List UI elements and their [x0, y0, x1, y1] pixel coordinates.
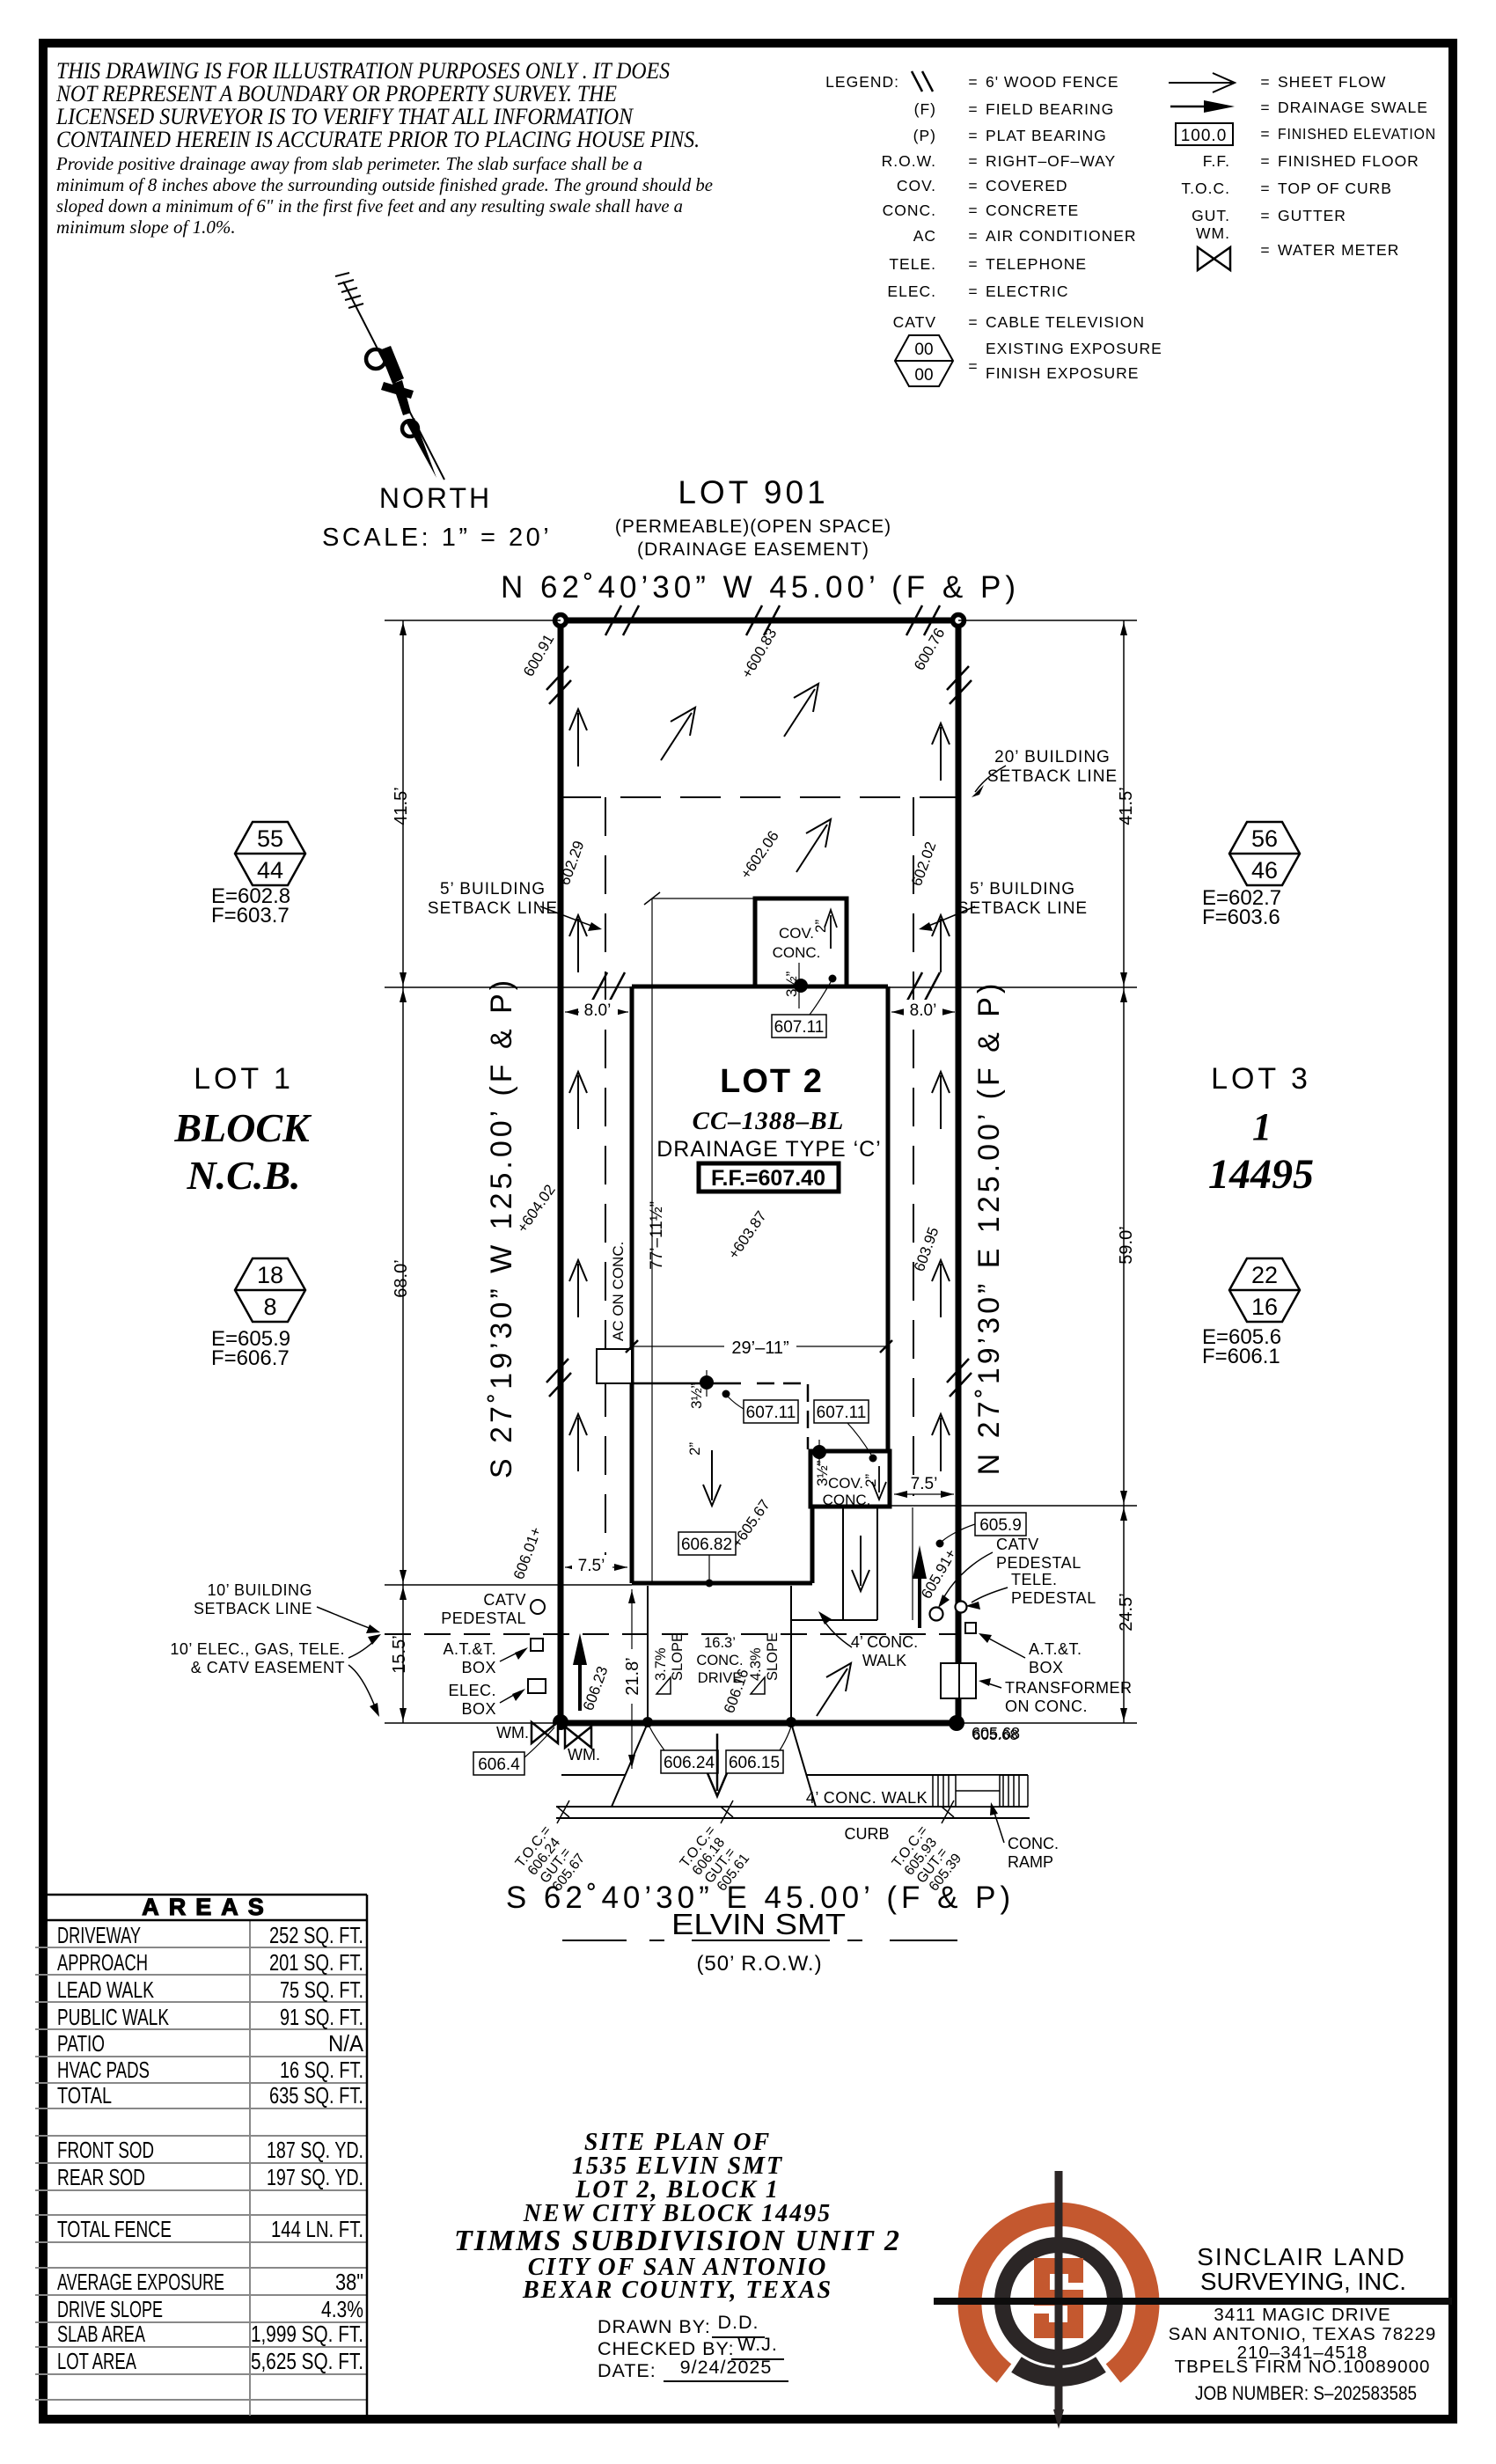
svg-text:PEDESTAL: PEDESTAL	[1011, 1589, 1096, 1607]
svg-text:607.11: 607.11	[774, 1018, 825, 1037]
svg-text:7.5’: 7.5’	[578, 1557, 605, 1575]
svg-text:F=603.6: F=603.6	[1202, 906, 1280, 929]
svg-text:18: 18	[257, 1262, 283, 1288]
svg-text:PEDESTAL: PEDESTAL	[996, 1554, 1082, 1572]
svg-text:AC ON CONC.: AC ON CONC.	[610, 1242, 627, 1341]
svg-text:LOT 901: LOT 901	[678, 474, 828, 510]
svg-text:TBPELS FIRM NO.10089000: TBPELS FIRM NO.10089000	[1175, 2357, 1431, 2377]
svg-text:3½”: 3½”	[814, 1460, 831, 1486]
svg-text:5’ BUILDING: 5’ BUILDING	[970, 880, 1075, 898]
svg-text:N 27˚19’30” E 125.00’ (F & P): N 27˚19’30” E 125.00’ (F & P)	[972, 980, 1006, 1476]
svg-text:144 LN. FT.: 144 LN. FT.	[271, 2216, 363, 2242]
svg-text:197 SQ. YD.: 197 SQ. YD.	[267, 2164, 363, 2190]
svg-text:BEXAR COUNTY, TEXAS: BEXAR COUNTY, TEXAS	[522, 2277, 832, 2304]
svg-text:91 SQ. FT.: 91 SQ. FT.	[280, 2004, 363, 2030]
svg-text:BOX: BOX	[461, 1700, 496, 1718]
svg-text:=: =	[968, 127, 978, 144]
svg-text:AREAS: AREAS	[142, 1894, 274, 1920]
svg-text:TOTAL FENCE: TOTAL FENCE	[57, 2216, 172, 2242]
svg-text:EXISTING EXPOSURE: EXISTING EXPOSURE	[986, 340, 1162, 357]
svg-text:606.24: 606.24	[664, 1754, 715, 1772]
svg-text:SLAB AREA: SLAB AREA	[57, 2321, 145, 2347]
svg-text:56: 56	[1251, 825, 1278, 852]
svg-text:DRIVEWAY: DRIVEWAY	[57, 1922, 141, 1948]
svg-text:CONC.: CONC.	[883, 202, 936, 219]
svg-text:N/A: N/A	[328, 2030, 364, 2057]
svg-text:COV.: COV.	[897, 177, 936, 194]
svg-text:DRIVE: DRIVE	[698, 1670, 742, 1686]
svg-text:RIGHT–OF–WAY: RIGHT–OF–WAY	[986, 152, 1116, 170]
svg-text:GUTTER: GUTTER	[1278, 207, 1346, 224]
svg-text:CONC.: CONC.	[1008, 1835, 1059, 1852]
svg-text:CONC.: CONC.	[773, 944, 821, 961]
svg-text:2”: 2”	[812, 920, 829, 933]
svg-text:=: =	[968, 152, 978, 170]
svg-text:SHEET FLOW: SHEET FLOW	[1278, 73, 1386, 91]
svg-text:R.O.W.: R.O.W.	[882, 152, 936, 170]
svg-text:CABLE TELEVISION: CABLE TELEVISION	[986, 313, 1145, 331]
svg-text:COV.: COV.	[779, 925, 814, 942]
svg-text:WM.: WM.	[1196, 224, 1230, 242]
svg-text:16 SQ. FT.: 16 SQ. FT.	[280, 2057, 363, 2083]
svg-text:607.11: 607.11	[746, 1404, 796, 1422]
svg-text:BOX: BOX	[1029, 1659, 1064, 1676]
svg-text:FINISHED ELEVATION: FINISHED ELEVATION	[1278, 125, 1436, 143]
svg-text:29’–11”: 29’–11”	[731, 1338, 788, 1358]
svg-text:AC: AC	[913, 227, 936, 245]
svg-text:=: =	[968, 282, 978, 300]
svg-text:21.8’: 21.8’	[623, 1657, 642, 1695]
svg-text:SLOPE: SLOPE	[765, 1632, 781, 1681]
svg-text:APPROACH: APPROACH	[57, 1949, 148, 1976]
svg-text:3½”: 3½”	[783, 971, 800, 997]
svg-text:=: =	[1260, 73, 1270, 91]
svg-text:F=606.1: F=606.1	[1202, 1345, 1280, 1368]
svg-text:LOT AREA: LOT AREA	[57, 2348, 136, 2374]
svg-text:CATV: CATV	[996, 1536, 1039, 1553]
svg-text:=: =	[1260, 125, 1270, 143]
svg-text:TELEPHONE: TELEPHONE	[986, 255, 1087, 273]
svg-text:RAMP: RAMP	[1008, 1853, 1053, 1871]
svg-text:FIELD BEARING: FIELD BEARING	[986, 100, 1114, 118]
svg-text:TRANSFORMER: TRANSFORMER	[1005, 1679, 1133, 1697]
svg-text:+604.02: +604.02	[514, 1182, 559, 1236]
svg-text:=: =	[968, 357, 978, 375]
svg-text:5’ BUILDING: 5’ BUILDING	[440, 880, 546, 898]
svg-text:(50’ R.O.W.): (50’ R.O.W.)	[696, 1952, 822, 1976]
svg-text:F.F.: F.F.	[1203, 152, 1230, 170]
svg-text:PATIO: PATIO	[57, 2030, 105, 2057]
svg-text:=: =	[1260, 152, 1270, 170]
svg-text:PLAT BEARING: PLAT BEARING	[986, 127, 1107, 144]
svg-text:77’–11½”: 77’–11½”	[648, 1201, 666, 1270]
svg-text:68.0’: 68.0’	[392, 1259, 411, 1297]
svg-text:CC–1388–BL: CC–1388–BL	[693, 1107, 845, 1135]
svg-text:38": 38"	[335, 2269, 363, 2295]
svg-text:4’ CONC.: 4’ CONC.	[851, 1633, 918, 1651]
svg-text:1: 1	[1252, 1105, 1272, 1148]
svg-text:+602.06: +602.06	[737, 828, 782, 883]
svg-text:CONCRETE: CONCRETE	[986, 202, 1079, 219]
svg-text:Provide positive drainage away: Provide positive drainage away from slab…	[55, 153, 642, 174]
svg-text:20’ BUILDING: 20’ BUILDING	[994, 748, 1111, 766]
svg-text:=: =	[1260, 207, 1270, 224]
svg-text:LEAD WALK: LEAD WALK	[57, 1976, 154, 2003]
svg-text:TOTAL: TOTAL	[57, 2082, 112, 2108]
svg-text:=: =	[1260, 241, 1270, 259]
svg-text:15.5’: 15.5’	[390, 1635, 409, 1673]
svg-text:5,625 SQ. FT.: 5,625 SQ. FT.	[251, 2348, 363, 2374]
svg-text:ELVIN SMT: ELVIN SMT	[671, 1908, 846, 1940]
svg-text:BLOCK: BLOCK	[173, 1105, 312, 1150]
svg-text:SINCLAIR LAND: SINCLAIR LAND	[1197, 2243, 1406, 2270]
svg-text:10’ BUILDING: 10’ BUILDING	[208, 1581, 312, 1599]
svg-text:=: =	[1260, 180, 1270, 197]
svg-text:F.F.=607.40: F.F.=607.40	[711, 1166, 825, 1191]
svg-text:55: 55	[257, 825, 283, 852]
svg-text:sloped down a minimum of 6" in: sloped down a minimum of 6" in the first…	[56, 195, 683, 216]
svg-text:NORTH: NORTH	[379, 482, 492, 514]
svg-text:TELE.: TELE.	[1011, 1571, 1058, 1588]
svg-text:JOB NUMBER: S–202583585: JOB NUMBER: S–202583585	[1195, 2382, 1417, 2404]
svg-text:TIMMS SUBDIVISION UNIT 2: TIMMS SUBDIVISION UNIT 2	[454, 2225, 901, 2257]
svg-text:44: 44	[257, 857, 283, 884]
svg-text:FRONT SOD: FRONT SOD	[57, 2137, 154, 2163]
svg-text:201 SQ. FT.: 201 SQ. FT.	[269, 1949, 363, 1976]
svg-text:D.D.: D.D.	[718, 2312, 759, 2333]
svg-text:606.82: 606.82	[681, 1536, 732, 1554]
svg-text:DRAWN BY:: DRAWN BY:	[598, 2316, 711, 2337]
svg-text:N.C.B.: N.C.B.	[186, 1153, 300, 1198]
svg-text:606.01+: 606.01+	[510, 1525, 545, 1582]
svg-text:FINISH EXPOSURE: FINISH EXPOSURE	[986, 364, 1139, 382]
svg-text:SAN ANTONIO, TEXAS 78229: SAN ANTONIO, TEXAS 78229	[1169, 2324, 1437, 2344]
svg-text:3½”: 3½”	[688, 1382, 705, 1409]
svg-text:ELEC.: ELEC.	[887, 282, 936, 300]
svg-text:DATE:: DATE:	[598, 2360, 656, 2381]
svg-text:NEW CITY BLOCK 14495: NEW CITY BLOCK 14495	[523, 2200, 832, 2227]
svg-text:CONC.: CONC.	[823, 1492, 871, 1508]
svg-text:75 SQ. FT.: 75 SQ. FT.	[280, 1976, 363, 2003]
svg-text:00: 00	[914, 366, 933, 385]
svg-text:8.0’: 8.0’	[584, 1001, 612, 1020]
svg-text:46: 46	[1251, 857, 1278, 884]
svg-text:16: 16	[1251, 1294, 1278, 1320]
svg-text:607.11: 607.11	[817, 1404, 867, 1422]
svg-text:635 SQ. FT.: 635 SQ. FT.	[269, 2082, 363, 2108]
svg-text:DRAINAGE SWALE: DRAINAGE SWALE	[1278, 99, 1428, 116]
svg-text:00: 00	[914, 341, 933, 359]
svg-text:GUT.: GUT.	[1192, 207, 1230, 224]
svg-text:CONTAINED HEREIN IS ACCURATE P: CONTAINED HEREIN IS ACCURATE PRIOR TO PL…	[56, 127, 700, 152]
svg-text:WM.: WM.	[568, 1746, 600, 1764]
svg-text:PUBLIC WALK: PUBLIC WALK	[57, 2004, 169, 2030]
svg-text:SETBACK LINE: SETBACK LINE	[428, 899, 558, 918]
svg-text:10’ ELEC., GAS, TELE.: 10’ ELEC., GAS, TELE.	[170, 1640, 345, 1658]
svg-text:252 SQ. FT.: 252 SQ. FT.	[269, 1922, 363, 1948]
svg-text:SETBACK LINE: SETBACK LINE	[957, 899, 1088, 918]
svg-text:=: =	[968, 73, 978, 91]
svg-text:=: =	[968, 100, 978, 118]
svg-text:7.5’: 7.5’	[911, 1475, 938, 1493]
svg-text:N 62˚40’30” W 45.00’ (F & P): N 62˚40’30” W 45.00’ (F & P)	[501, 570, 1020, 605]
svg-text:=: =	[968, 227, 978, 245]
svg-text:CONC.: CONC.	[696, 1653, 743, 1668]
svg-text:24.5’: 24.5’	[1117, 1593, 1136, 1631]
svg-text:F=603.7: F=603.7	[211, 904, 290, 928]
svg-text:2”: 2”	[862, 1474, 879, 1487]
svg-text:TOP OF CURB: TOP OF CURB	[1278, 180, 1392, 197]
svg-text:606.4: 606.4	[478, 1756, 520, 1774]
svg-text:WM.: WM.	[496, 1724, 529, 1742]
svg-text:600.76: 600.76	[911, 625, 948, 673]
svg-text:COVERED: COVERED	[986, 177, 1068, 194]
svg-text:+600.83: +600.83	[738, 626, 780, 681]
svg-text:AIR CONDITIONER: AIR CONDITIONER	[986, 227, 1137, 245]
svg-text:S 27˚19’30” W 125.00’ (F & P): S 27˚19’30” W 125.00’ (F & P)	[485, 977, 518, 1478]
svg-text:16.3’: 16.3’	[704, 1635, 736, 1651]
svg-text:14495: 14495	[1208, 1151, 1314, 1198]
svg-text:DRAINAGE TYPE ‘C’: DRAINAGE TYPE ‘C’	[656, 1137, 881, 1162]
svg-text:8.0’: 8.0’	[910, 1001, 937, 1020]
svg-text:59.0’: 59.0’	[1117, 1226, 1136, 1264]
svg-text:SETBACK LINE: SETBACK LINE	[987, 767, 1118, 786]
svg-text:NOT REPRESENT A BOUNDARY OR PR: NOT REPRESENT A BOUNDARY OR PROPERTY SUR…	[55, 81, 617, 106]
svg-text:A.T.&T.: A.T.&T.	[443, 1640, 496, 1658]
svg-text:CURB: CURB	[844, 1825, 889, 1843]
svg-text:4.3%: 4.3%	[748, 1647, 764, 1681]
svg-text:BOX: BOX	[461, 1659, 496, 1676]
svg-text:8: 8	[263, 1294, 276, 1320]
svg-text:PEDESTAL: PEDESTAL	[441, 1610, 526, 1627]
svg-text:3.7%: 3.7%	[653, 1647, 669, 1681]
svg-text:605.68: 605.68	[972, 1725, 1020, 1742]
svg-text:=: =	[968, 313, 978, 331]
svg-text:T.O.C.: T.O.C.	[1181, 180, 1230, 197]
svg-text:AVERAGE EXPOSURE: AVERAGE EXPOSURE	[57, 2269, 224, 2295]
svg-text:LICENSED SURVEYOR IS TO VERIFY: LICENSED SURVEYOR IS TO VERIFY THAT ALL …	[55, 104, 634, 129]
svg-text:41.5’: 41.5’	[392, 787, 411, 825]
svg-text:WALK: WALK	[862, 1652, 906, 1669]
svg-text:SETBACK LINE: SETBACK LINE	[194, 1600, 312, 1617]
svg-text:TELE.: TELE.	[889, 255, 936, 273]
svg-text:SLOPE: SLOPE	[670, 1632, 686, 1681]
svg-text:minimum of 8 inches above the: minimum of 8 inches above the surroundin…	[56, 174, 713, 195]
svg-text:LOT 1: LOT 1	[194, 1062, 294, 1096]
svg-text:1,999 SQ. FT.: 1,999 SQ. FT.	[251, 2321, 363, 2347]
svg-text:CATV: CATV	[893, 313, 936, 331]
svg-text:=: =	[968, 202, 978, 219]
svg-text:605.9: 605.9	[979, 1516, 1022, 1535]
svg-text:+603.87: +603.87	[725, 1208, 770, 1263]
svg-text:LEGEND:: LEGEND:	[825, 73, 899, 91]
svg-text:6' WOOD FENCE: 6' WOOD FENCE	[986, 73, 1119, 91]
svg-text:& CATV EASEMENT: & CATV EASEMENT	[191, 1659, 345, 1676]
svg-text:ELECTRIC: ELECTRIC	[986, 282, 1069, 300]
svg-text:FINISHED FLOOR: FINISHED FLOOR	[1278, 152, 1419, 170]
svg-text:LOT 3: LOT 3	[1211, 1062, 1311, 1096]
svg-text:SURVEYING, INC.: SURVEYING, INC.	[1200, 2268, 1406, 2295]
svg-text:minimum slope of 1.0%.: minimum slope of 1.0%.	[56, 216, 236, 238]
svg-text:4.3%: 4.3%	[321, 2296, 363, 2322]
svg-text:100.0: 100.0	[1181, 127, 1228, 145]
svg-text:22: 22	[1251, 1262, 1278, 1288]
svg-text:606.23: 606.23	[580, 1664, 612, 1712]
svg-text:HVAC PADS: HVAC PADS	[57, 2057, 150, 2083]
svg-text:41.5’: 41.5’	[1117, 787, 1136, 825]
svg-text:=: =	[968, 255, 978, 273]
svg-text:REAR SOD: REAR SOD	[57, 2164, 145, 2190]
svg-text:SCALE: 1” = 20’: SCALE: 1” = 20’	[322, 524, 552, 552]
svg-text:=: =	[968, 177, 978, 194]
svg-text:4’ CONC. WALK: 4’ CONC. WALK	[806, 1789, 928, 1807]
svg-text:2”: 2”	[686, 1442, 703, 1456]
svg-text:ON CONC.: ON CONC.	[1005, 1698, 1088, 1715]
svg-text:CATV: CATV	[483, 1591, 526, 1609]
svg-text:600.91: 600.91	[520, 631, 557, 679]
svg-text:=: =	[1260, 99, 1270, 116]
svg-text:606.15: 606.15	[729, 1754, 780, 1772]
svg-text:ELEC.: ELEC.	[448, 1682, 496, 1699]
svg-text:LOT 2: LOT 2	[720, 1063, 824, 1100]
svg-text:A.T.&T.: A.T.&T.	[1029, 1640, 1082, 1658]
svg-text:187 SQ. YD.: 187 SQ. YD.	[267, 2137, 363, 2163]
svg-text:(F): (F)	[914, 100, 936, 118]
svg-text:WATER METER: WATER METER	[1278, 241, 1399, 259]
svg-text:(P): (P)	[913, 127, 936, 144]
svg-text:(DRAINAGE EASEMENT): (DRAINAGE EASEMENT)	[637, 539, 869, 560]
svg-text:COV.: COV.	[828, 1475, 863, 1492]
svg-text:DRIVE SLOPE: DRIVE SLOPE	[57, 2296, 163, 2322]
svg-text:(PERMEABLE)(OPEN SPACE): (PERMEABLE)(OPEN SPACE)	[615, 517, 891, 537]
svg-text:THIS DRAWING IS FOR ILLUSTRATI: THIS DRAWING IS FOR ILLUSTRATION PURPOSE…	[56, 58, 670, 84]
svg-text:3411 MAGIC DRIVE: 3411 MAGIC DRIVE	[1214, 2305, 1390, 2325]
svg-text:F=606.7: F=606.7	[211, 1346, 290, 1370]
